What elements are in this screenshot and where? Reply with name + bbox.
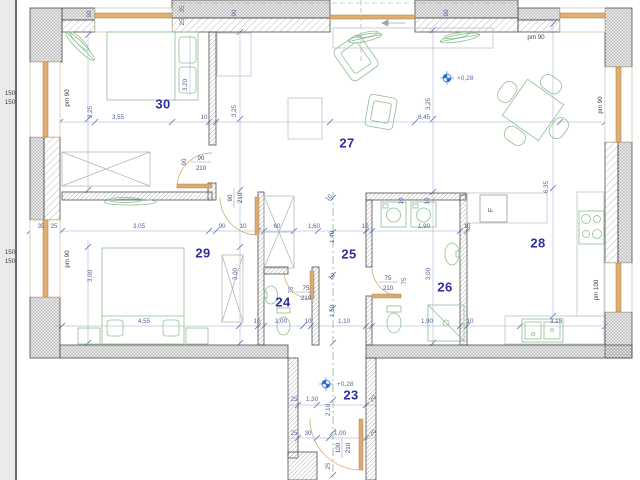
dining-table bbox=[502, 79, 563, 140]
dimension-label: 3,55 bbox=[112, 114, 125, 121]
dimension-label: 3,25 bbox=[231, 104, 238, 117]
window-top-left bbox=[95, 8, 172, 32]
sink-bath26 bbox=[445, 243, 460, 265]
dimension-label: 1,50 bbox=[329, 304, 336, 317]
dimension-label: 4,55 bbox=[138, 318, 151, 325]
sideboard-room27-b bbox=[288, 98, 322, 139]
room-number-27: 27 bbox=[339, 136, 354, 151]
svg-text:75: 75 bbox=[385, 275, 392, 282]
svg-text:210: 210 bbox=[237, 192, 244, 203]
svg-text:210: 210 bbox=[196, 165, 207, 172]
dimension-label: 1,00 bbox=[334, 430, 347, 437]
exterior-walls bbox=[30, 0, 632, 358]
dimension-label: 90 bbox=[181, 158, 188, 165]
dimension-label: 10 bbox=[201, 114, 208, 121]
window-top-right bbox=[560, 8, 605, 32]
dimension-label: 10 bbox=[424, 197, 431, 204]
dimension-label: 10 bbox=[362, 223, 369, 230]
dimension-label: 2,10 bbox=[325, 403, 332, 416]
dimension-label: 75 bbox=[288, 286, 295, 293]
dimension-label: 3,05 bbox=[133, 223, 146, 230]
svg-text:90: 90 bbox=[198, 155, 205, 162]
room-number-30: 30 bbox=[155, 97, 170, 112]
window-size-label: pm 90 bbox=[527, 34, 545, 41]
dimension-label: 3,00 bbox=[87, 269, 94, 282]
fixture-label: F bbox=[488, 208, 495, 212]
dimension-label: 1,00 bbox=[275, 318, 288, 325]
dimension-label: 1,10 bbox=[338, 318, 351, 325]
room-number-26: 26 bbox=[437, 280, 452, 295]
window-size-label: 150 bbox=[5, 90, 16, 97]
dimension-label: 1,90 bbox=[418, 223, 431, 230]
dimension-label: 90 bbox=[443, 9, 450, 16]
dimension-label: 25 bbox=[51, 223, 58, 230]
window-size-label: 150 bbox=[5, 258, 16, 265]
dimension-label: 3,00 bbox=[232, 267, 239, 280]
door-size-label: 100210 bbox=[335, 438, 352, 458]
dimension-label: 1,40 bbox=[329, 230, 336, 243]
dimension-label: 8,45 bbox=[418, 114, 431, 121]
dimension-label: 3,25 bbox=[87, 105, 94, 118]
window-size-label: pm 90 bbox=[64, 250, 71, 268]
dimension-label: 60 bbox=[274, 223, 281, 230]
window-size-label: 150 bbox=[5, 249, 16, 256]
interior-walls bbox=[62, 32, 467, 480]
dimension-label: 3,25 bbox=[425, 97, 432, 110]
dimension-label: 10 bbox=[240, 223, 247, 230]
floor-plan-page: 3,55108,4590352590903,253,203,253,256,35… bbox=[0, 0, 640, 480]
window-size-label: pm 90 bbox=[64, 89, 71, 107]
dimension-label: 75 bbox=[401, 277, 408, 284]
dimension-label: 90 bbox=[231, 9, 238, 16]
dimension-label: 10 bbox=[305, 318, 312, 325]
window-size-label: 150 bbox=[5, 99, 16, 106]
toilet-bath26 bbox=[387, 306, 401, 333]
dimension-label: 1,60 bbox=[308, 223, 321, 230]
svg-text:+0,28: +0,28 bbox=[457, 75, 474, 82]
armchair-room27-b bbox=[364, 94, 397, 130]
room-number-28: 28 bbox=[530, 236, 545, 251]
dimension-label: 25 bbox=[291, 396, 298, 403]
dimension-label: 10 bbox=[327, 272, 337, 282]
shower-bath26 bbox=[428, 305, 464, 341]
dimension-label: 1,90 bbox=[421, 318, 434, 325]
room-number-25: 25 bbox=[341, 247, 356, 262]
svg-text:90: 90 bbox=[227, 194, 234, 201]
slider-direction-arrow bbox=[382, 20, 405, 26]
bed-room29 bbox=[78, 248, 208, 344]
sideboard-room27-a bbox=[217, 33, 251, 76]
dimension-label: 35 bbox=[38, 223, 45, 230]
dimension-label: 3,00 bbox=[425, 267, 432, 280]
room-number-24: 24 bbox=[275, 295, 290, 310]
door-room30 bbox=[177, 153, 212, 188]
window-size-label: pm 100 bbox=[593, 279, 600, 300]
dimension-label: 3,15 bbox=[550, 318, 563, 325]
room-number-23: 23 bbox=[343, 388, 358, 403]
wardrobe-hall25 bbox=[264, 196, 294, 268]
dimension-label: 10 bbox=[467, 318, 474, 325]
dimension-label: 3,20 bbox=[182, 78, 189, 91]
dimension-label: 25 bbox=[291, 430, 298, 437]
door-size-label: 75210 bbox=[378, 275, 398, 292]
plant-corner-room30 bbox=[63, 28, 98, 63]
stove bbox=[579, 211, 604, 244]
door-size-label: 90210 bbox=[227, 188, 244, 208]
window-size-label: pm 90 bbox=[597, 96, 604, 114]
dimension-label: 30 bbox=[305, 430, 312, 437]
dimension-label: 25 bbox=[325, 462, 332, 469]
windows bbox=[30, 8, 632, 312]
svg-text:100: 100 bbox=[335, 442, 342, 453]
dimension-label: 10 bbox=[398, 197, 405, 204]
dimension-label: 90 bbox=[219, 223, 226, 230]
dimension-label: 25 bbox=[179, 18, 186, 25]
labels-layer: 3,55108,4590352590903,253,203,253,256,35… bbox=[5, 5, 604, 469]
washing-machine-1 bbox=[381, 202, 406, 227]
wardrobe-room30 bbox=[62, 152, 150, 186]
nightstand-right bbox=[186, 328, 208, 344]
room-number-29: 29 bbox=[195, 246, 210, 261]
level-marker: +0,28 bbox=[440, 71, 474, 85]
dimension-label: 35 bbox=[179, 5, 186, 12]
armchair-room27-a bbox=[332, 33, 380, 82]
balcony-slider-window bbox=[330, 15, 415, 19]
dimension-label: 10 bbox=[464, 223, 471, 230]
door-bath26 bbox=[372, 267, 401, 298]
dimension-label: 6,35 bbox=[543, 180, 550, 193]
dimension-label: 1,30 bbox=[306, 396, 319, 403]
svg-text:210: 210 bbox=[301, 295, 312, 302]
dimension-label: 10 bbox=[254, 318, 261, 325]
svg-text:210: 210 bbox=[383, 285, 394, 292]
dining-set bbox=[479, 56, 588, 165]
svg-text:75: 75 bbox=[303, 285, 310, 292]
furniture bbox=[62, 28, 587, 344]
dimension-label: 90 bbox=[86, 10, 93, 17]
svg-text:210: 210 bbox=[345, 442, 352, 453]
